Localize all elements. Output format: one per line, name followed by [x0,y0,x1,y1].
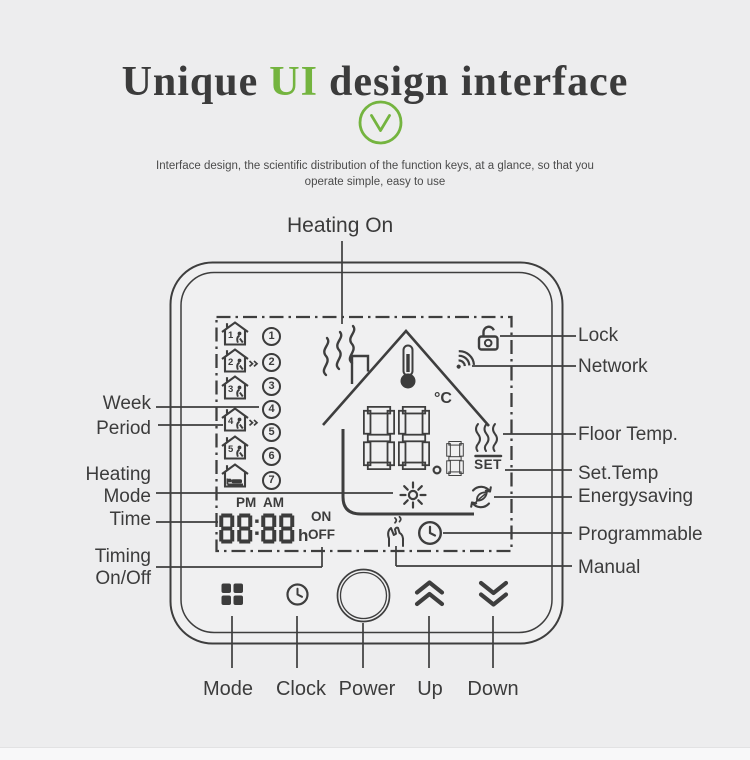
sun-heating-mode-icon [399,481,427,509]
time-display [219,512,303,545]
week-day-circle: 6 [262,447,281,466]
house-person-leave-icon: 4 [221,407,259,434]
week-day-circle: 4 [262,400,281,419]
week-day-circle: 7 [262,471,281,490]
label-manual: Manual [578,557,640,579]
network-wifi-icon [447,348,475,376]
thermostat-ui-diagram: UniqueUIdesign interface Interface desig… [0,0,750,760]
thermometer-icon [395,344,421,390]
house-person-leave-icon: 2 [221,348,259,375]
label-programmable: Programmable [578,524,703,546]
label-button-mode: Mode [203,678,253,700]
power-circle-icon [336,568,391,623]
on-label: ON [311,510,331,524]
label-button-down: Down [467,678,518,700]
device-line-art [0,0,750,760]
house-person-icon: 1 [221,321,259,348]
chevron-up-icon [414,580,445,607]
week-day-circle: 1 [262,327,281,346]
label-week: Week [103,393,151,415]
label-energysaving: Energysaving [578,486,693,508]
label-button-clock: Clock [276,678,326,700]
floor-temp-waves-icon [473,420,505,460]
label-network: Network [578,356,648,378]
lock-icon [475,324,503,352]
label-time: Time [109,509,151,531]
label-timing-onoff: Timing On/Off [95,546,151,590]
week-day-circle: 3 [262,377,281,396]
house-sleep-icon [221,463,259,490]
label-heating-mode: Heating Mode [86,464,152,508]
week-day-circle: 2 [262,353,281,372]
programmable-clock-icon [417,520,443,546]
energysaving-icon [467,483,495,511]
hour-unit-label: h [298,527,308,544]
house-person-icon: 3 [221,375,259,402]
label-button-power: Power [339,678,396,700]
label-set-temp: Set.Temp [578,463,658,485]
week-day-circle: 5 [262,423,281,442]
heating-flame-icon [316,321,368,379]
off-label: OFF [308,528,335,542]
pm-label: PM [236,496,256,510]
chevron-down-icon [478,580,509,607]
clock-icon [286,583,309,606]
set-label: SET [472,458,504,472]
mode-grid-icon [221,583,244,606]
am-label: AM [263,496,284,510]
label-button-up: Up [417,678,443,700]
manual-hand-icon [383,515,409,547]
temperature-display [360,404,472,476]
label-period: Period [96,418,151,440]
label-floor-temp: Floor Temp. [578,424,678,446]
label-heating-on: Heating On [287,214,393,238]
label-lock: Lock [578,325,618,347]
house-person-icon: 5 [221,435,259,462]
bottom-strip [0,747,750,760]
